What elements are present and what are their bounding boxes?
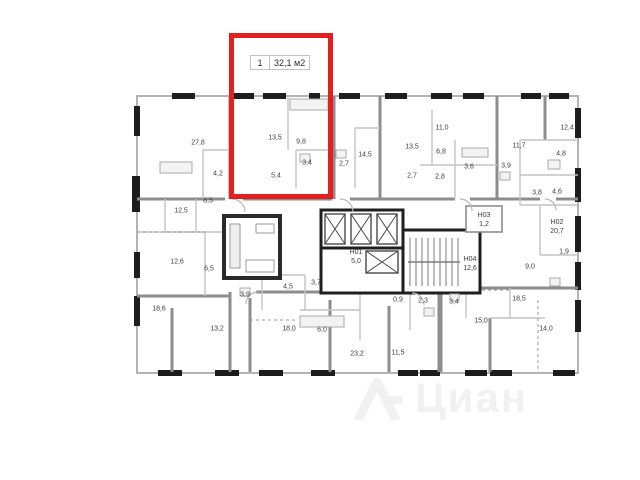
cian-logo-icon: [355, 376, 407, 420]
unit-number: 1: [251, 56, 270, 69]
unit-area: 32,1 м2: [270, 56, 309, 69]
watermark-text: Циан: [415, 377, 528, 419]
elevator-core: [321, 210, 403, 248]
floorplan-image: 27,813,59,83,45,44,28,512,514,52,713,52,…: [0, 0, 640, 480]
elevator-lobby: [321, 248, 403, 293]
unit-label-box: 1 32,1 м2: [250, 55, 310, 70]
furnished-room: [224, 216, 280, 278]
watermark: Циан: [355, 376, 528, 420]
